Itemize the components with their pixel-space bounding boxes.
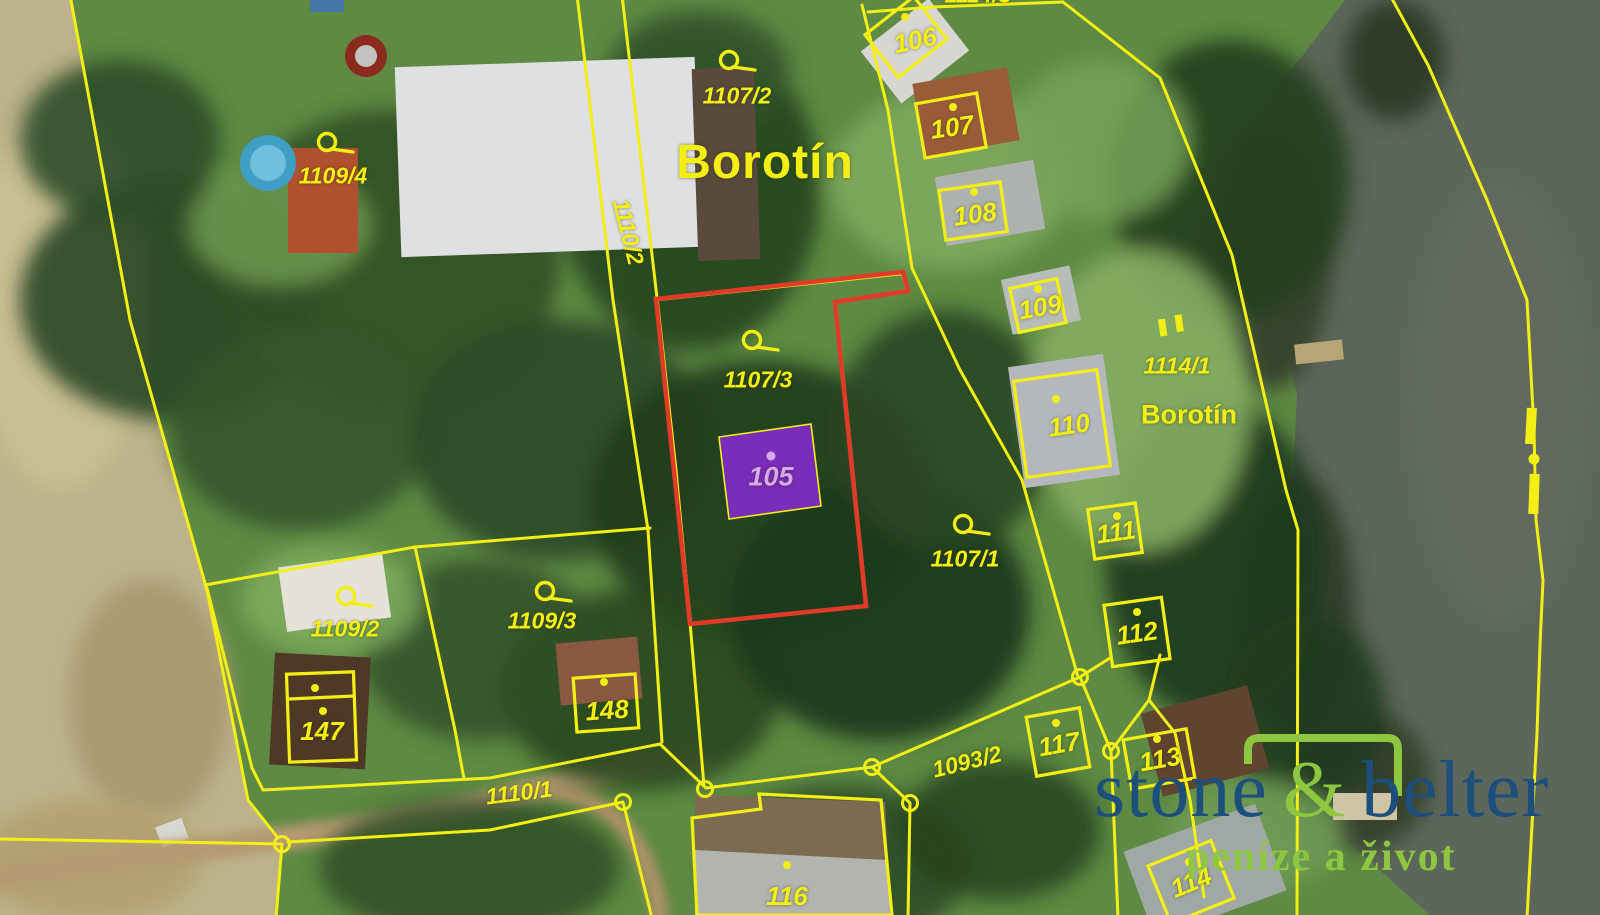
building-label-109: 109 [1016, 290, 1063, 323]
building-label-107: 107 [929, 111, 976, 143]
parcel-label-1107-2: 1107/2 [703, 85, 772, 108]
fence-bar [1528, 474, 1539, 514]
building-label-117: 117 [1036, 728, 1081, 761]
building-label-110: 110 [1047, 409, 1092, 441]
building-label-105: 105 [748, 464, 793, 491]
town-label-borotin-large: Borotín [676, 139, 854, 187]
logo-ampersand: & [1283, 750, 1346, 830]
building-label-116: 116 [766, 883, 807, 909]
town-label-borotin-small: Borotín [1141, 402, 1237, 429]
tarp [310, 0, 344, 12]
logo-brand-first: stone [1094, 750, 1268, 830]
parcel-label-1114-3-clipped: 1114/3 [945, 0, 1012, 7]
logo-brand-second: belter [1361, 750, 1549, 830]
watermark-tagline: peníze a život [1186, 836, 1457, 878]
parcel-label-1109-3: 1109/3 [508, 610, 577, 633]
fence-dot [1529, 454, 1540, 465]
parcel-label-1107-1: 1107/1 [931, 548, 1000, 571]
building-label-148: 148 [584, 696, 629, 725]
pool [355, 45, 377, 67]
parcel-label-1114-1: 1114/1 [1144, 355, 1211, 378]
parcel-label-1109-2: 1109/2 [311, 618, 380, 641]
roof [695, 795, 888, 860]
building-label-147: 147 [300, 718, 343, 744]
building-label-112: 112 [1115, 617, 1160, 649]
building-label-108: 108 [952, 198, 999, 230]
building-label-111: 111 [1095, 516, 1138, 547]
fence-bar [1525, 408, 1537, 444]
cadastral-map-view: 1109/4 1107/2 Borotín 1110/2 1107/3 105 … [0, 0, 1600, 915]
parcel-label-1109-4: 1109/4 [299, 165, 368, 188]
parcel-label-1107-3: 1107/3 [724, 369, 793, 392]
roof [395, 57, 701, 257]
watermark-logo: stone&belter [1094, 750, 1549, 830]
pool [250, 145, 286, 181]
